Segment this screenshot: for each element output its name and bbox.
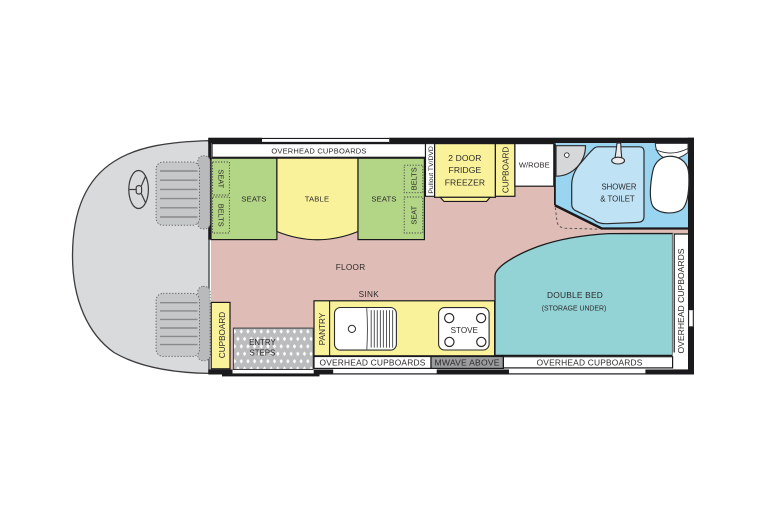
svg-text:DOUBLE BED: DOUBLE BED [547,290,603,300]
svg-text:(STORAGE UNDER): (STORAGE UNDER) [542,305,607,312]
svg-text:Pullout TV/DVD: Pullout TV/DVD [428,146,435,194]
svg-text:BELTS: BELTS [217,204,226,227]
svg-text:& TOILET: & TOILET [600,194,635,203]
svg-text:STOVE: STOVE [451,326,479,335]
svg-text:SEATS: SEATS [241,195,266,204]
svg-text:OVERHEAD CUPBOARDS: OVERHEAD CUPBOARDS [676,248,686,353]
svg-text:MWAVE ABOVE: MWAVE ABOVE [434,357,499,367]
svg-text:STEPS: STEPS [249,348,275,357]
svg-text:OVERHEAD CUPBOARDS: OVERHEAD CUPBOARDS [537,357,643,367]
svg-text:SEATS: SEATS [371,195,396,204]
svg-text:PANTRY: PANTRY [318,312,327,345]
svg-text:CUPBOARD: CUPBOARD [501,147,510,193]
svg-text:SINK: SINK [359,290,380,299]
svg-text:CUPBOARD: CUPBOARD [218,312,227,358]
svg-text:SEAT: SEAT [410,205,419,224]
svg-text:SEAT: SEAT [217,169,226,188]
svg-text:W/ROBE: W/ROBE [519,161,550,170]
svg-text:FREEZER: FREEZER [445,178,485,188]
svg-text:OVERHEAD CUPBOARDS: OVERHEAD CUPBOARDS [320,357,426,367]
svg-text:FRIDGE: FRIDGE [449,165,482,175]
svg-text:OVERHEAD CUPBOARDS: OVERHEAD CUPBOARDS [271,147,366,156]
svg-text:ENTRY: ENTRY [249,338,276,347]
svg-text:2 DOOR: 2 DOOR [448,153,481,163]
svg-text:FLOOR: FLOOR [336,263,366,272]
svg-text:BELTS: BELTS [410,167,419,190]
svg-text:TABLE: TABLE [305,195,330,204]
svg-text:SHOWER: SHOWER [601,182,636,191]
